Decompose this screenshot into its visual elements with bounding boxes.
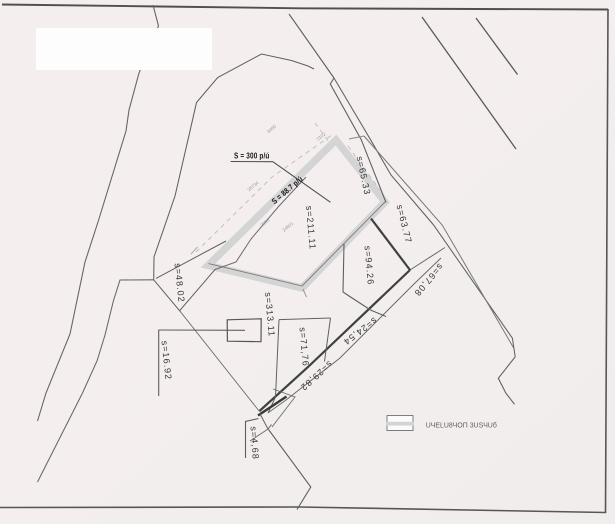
svg-text:UЧЕLU8ЧОП 3USЧUб: UЧЕLU8ЧОП 3USЧUб bbox=[426, 420, 498, 429]
svg-text:S = 300 p/ú: S = 300 p/ú bbox=[234, 152, 270, 161]
